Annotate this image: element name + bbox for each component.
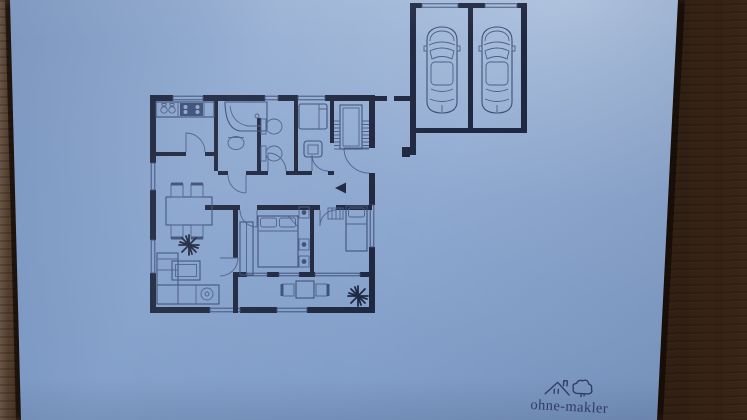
master-bedroom xyxy=(240,207,309,275)
toilet-icon xyxy=(261,119,282,134)
washbasin-icon xyxy=(228,137,244,150)
ohne-makler-logo: ohne-makler xyxy=(530,377,609,417)
car-icon xyxy=(424,27,460,113)
staircase xyxy=(334,105,369,149)
small-bedroom xyxy=(299,104,327,157)
garage-door-right xyxy=(485,4,517,7)
car-icon xyxy=(479,27,515,113)
single-bed-icon xyxy=(346,206,367,251)
coffee-table-icon xyxy=(172,261,200,280)
plant-icon xyxy=(348,286,368,306)
double-bed-icon xyxy=(258,216,298,267)
stove-icon xyxy=(180,103,203,116)
house-icon xyxy=(545,380,570,395)
nightstand-icon xyxy=(299,207,309,267)
logo-text: ohne-makler xyxy=(530,397,608,417)
terrace xyxy=(281,281,369,306)
plant-icon xyxy=(179,235,199,255)
dining-living-room xyxy=(157,183,219,305)
wardrobe-icon xyxy=(240,222,253,275)
photo-scene: ohne-makler xyxy=(0,0,747,420)
sink-icon xyxy=(161,104,175,114)
floor-plan-paper: ohne-makler xyxy=(0,0,747,420)
double-garage xyxy=(410,3,527,133)
bathroom xyxy=(225,102,282,161)
floor-plan-drawing: ohne-makler xyxy=(0,0,747,420)
second-bedroom xyxy=(328,206,367,251)
armchair-icon xyxy=(304,141,322,157)
connecting-wall xyxy=(375,96,416,157)
dining-table-icon xyxy=(166,183,212,240)
cloud-icon xyxy=(572,380,592,398)
kitchen xyxy=(156,102,214,117)
entrance-arrow-icon xyxy=(335,183,346,194)
garage-door-left xyxy=(422,4,458,7)
